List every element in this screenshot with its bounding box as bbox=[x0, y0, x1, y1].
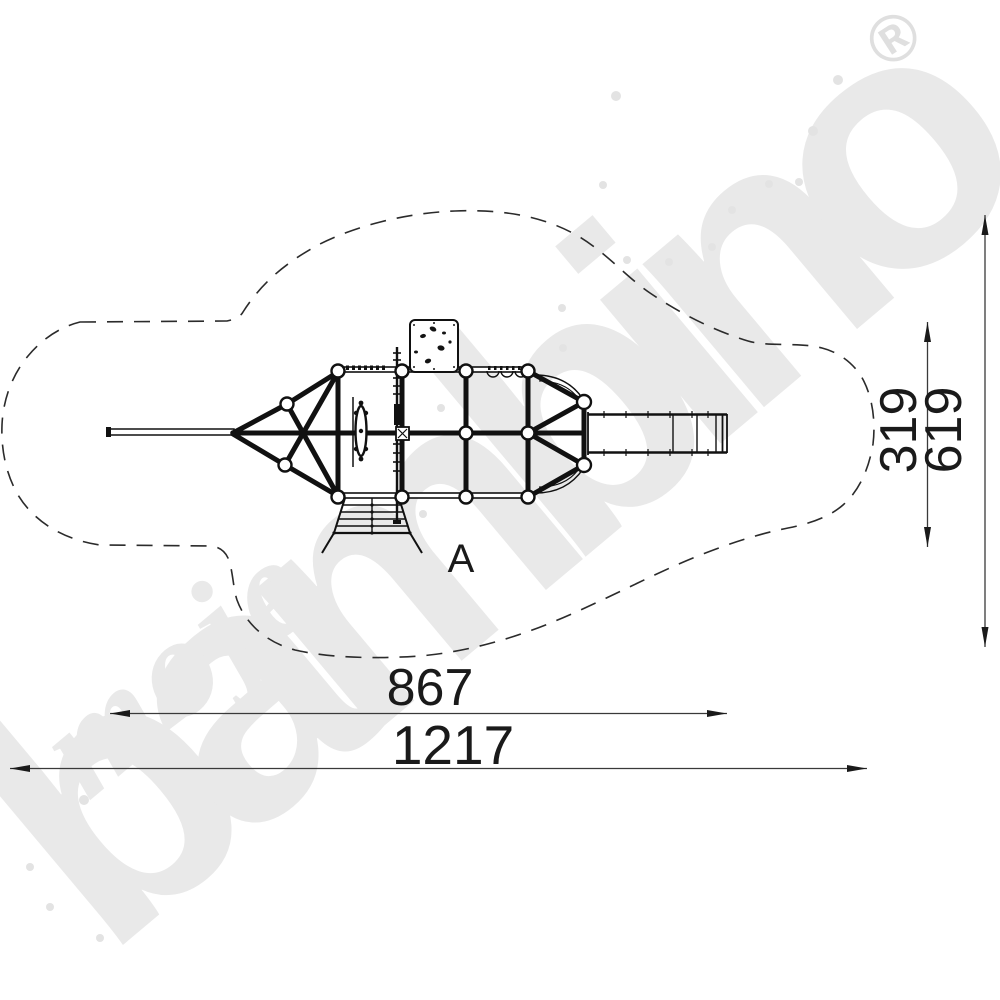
climbing-hold bbox=[414, 351, 418, 354]
dimension-value: 867 bbox=[387, 659, 474, 717]
watermark-brand-text: bambino bbox=[0, 0, 1000, 1000]
panel-screw bbox=[413, 324, 415, 326]
watermark-dot bbox=[26, 863, 34, 871]
technical-drawing-svg: bambino moje ® bbox=[0, 0, 1000, 1000]
joint-ball bbox=[396, 365, 409, 378]
watermark-dot bbox=[437, 404, 445, 412]
wheel-knob bbox=[359, 457, 364, 462]
joint-ball bbox=[460, 491, 473, 504]
joint-ball bbox=[522, 427, 535, 440]
panel-screw bbox=[433, 368, 435, 370]
bowsprit-pole bbox=[106, 427, 234, 437]
panel-screw bbox=[453, 366, 455, 368]
drawing-canvas: bambino moje ® bbox=[0, 0, 1000, 1000]
scallop-tick bbox=[512, 366, 515, 370]
view-label: A bbox=[448, 537, 475, 581]
watermark-dot bbox=[728, 206, 736, 214]
joint-ball bbox=[281, 398, 294, 411]
panel-screw bbox=[453, 324, 455, 326]
wheel-knob bbox=[359, 401, 364, 406]
watermark-dot bbox=[708, 243, 716, 251]
wheel-knob bbox=[354, 411, 358, 415]
watermark-dot bbox=[79, 795, 89, 805]
joint-ball bbox=[577, 395, 591, 409]
dimension-value: 1217 bbox=[392, 714, 514, 776]
grip-tick bbox=[358, 366, 361, 371]
watermark-dot bbox=[419, 510, 427, 518]
wheel-knob bbox=[364, 411, 368, 415]
grip-tick bbox=[364, 366, 367, 371]
ladder-knot bbox=[370, 510, 373, 513]
watermark-dot bbox=[765, 180, 773, 188]
watermark-dot bbox=[623, 256, 631, 264]
watermark-dot bbox=[558, 304, 566, 312]
joint-ball bbox=[332, 491, 345, 504]
ladder-knot bbox=[408, 531, 411, 534]
grip-tick bbox=[370, 366, 373, 371]
joint-ball bbox=[460, 427, 473, 440]
watermark-layer: bambino moje ® bbox=[0, 0, 1000, 1000]
joint-ball bbox=[522, 491, 535, 504]
bow-apex-joint bbox=[230, 430, 236, 436]
climbing-hold bbox=[448, 340, 451, 343]
grip-tick bbox=[382, 366, 385, 371]
watermark-dot bbox=[795, 178, 803, 186]
watermark-dot bbox=[833, 75, 843, 85]
watermark-dot bbox=[611, 91, 621, 101]
dimension-value: 619 bbox=[915, 387, 973, 474]
watermark-dot bbox=[559, 344, 567, 352]
grip-tick bbox=[352, 366, 355, 371]
joint-ball bbox=[522, 365, 535, 378]
joint-ball bbox=[460, 365, 473, 378]
scallop-tick bbox=[488, 366, 491, 370]
pole-end-cap bbox=[106, 427, 111, 437]
pole-foot bbox=[393, 520, 401, 524]
watermark-dot bbox=[665, 258, 673, 266]
watermark-dot bbox=[46, 903, 54, 911]
climbing-hold bbox=[442, 332, 446, 335]
arrowhead-right bbox=[707, 710, 727, 717]
wheel-knob bbox=[364, 447, 368, 451]
joint-ball bbox=[396, 491, 409, 504]
ladder-knot bbox=[370, 531, 373, 534]
scallop-tick bbox=[506, 366, 509, 370]
watermark-dot bbox=[96, 934, 104, 942]
scallop-tick bbox=[494, 366, 497, 370]
pole-clamp bbox=[396, 427, 409, 440]
scallop-tick bbox=[500, 366, 503, 370]
scallop-tick bbox=[518, 366, 521, 370]
joint-ball bbox=[332, 365, 345, 378]
panel-screw bbox=[433, 322, 435, 324]
wheel-knob bbox=[354, 447, 358, 451]
panel-screw bbox=[413, 366, 415, 368]
ladder-knot bbox=[332, 531, 335, 534]
ladder-knot bbox=[370, 524, 373, 527]
ladder-knot bbox=[370, 503, 373, 506]
arrowhead-bottom bbox=[982, 627, 989, 647]
pole-body bbox=[109, 429, 234, 435]
grip-tick bbox=[376, 366, 379, 371]
arrowhead-bottom bbox=[924, 527, 931, 547]
watermark-dot bbox=[599, 181, 607, 189]
ladder-knot bbox=[370, 517, 373, 520]
grip-tick bbox=[346, 366, 349, 371]
bottom-deck-rail bbox=[338, 493, 528, 498]
wheel-hub bbox=[359, 429, 363, 433]
pole-sleeve bbox=[394, 404, 401, 425]
watermark-dot bbox=[808, 126, 818, 136]
climbing-wall-panel bbox=[410, 320, 458, 372]
arrowhead-right bbox=[847, 765, 867, 772]
joint-ball bbox=[577, 458, 591, 472]
joint-ball bbox=[279, 459, 292, 472]
